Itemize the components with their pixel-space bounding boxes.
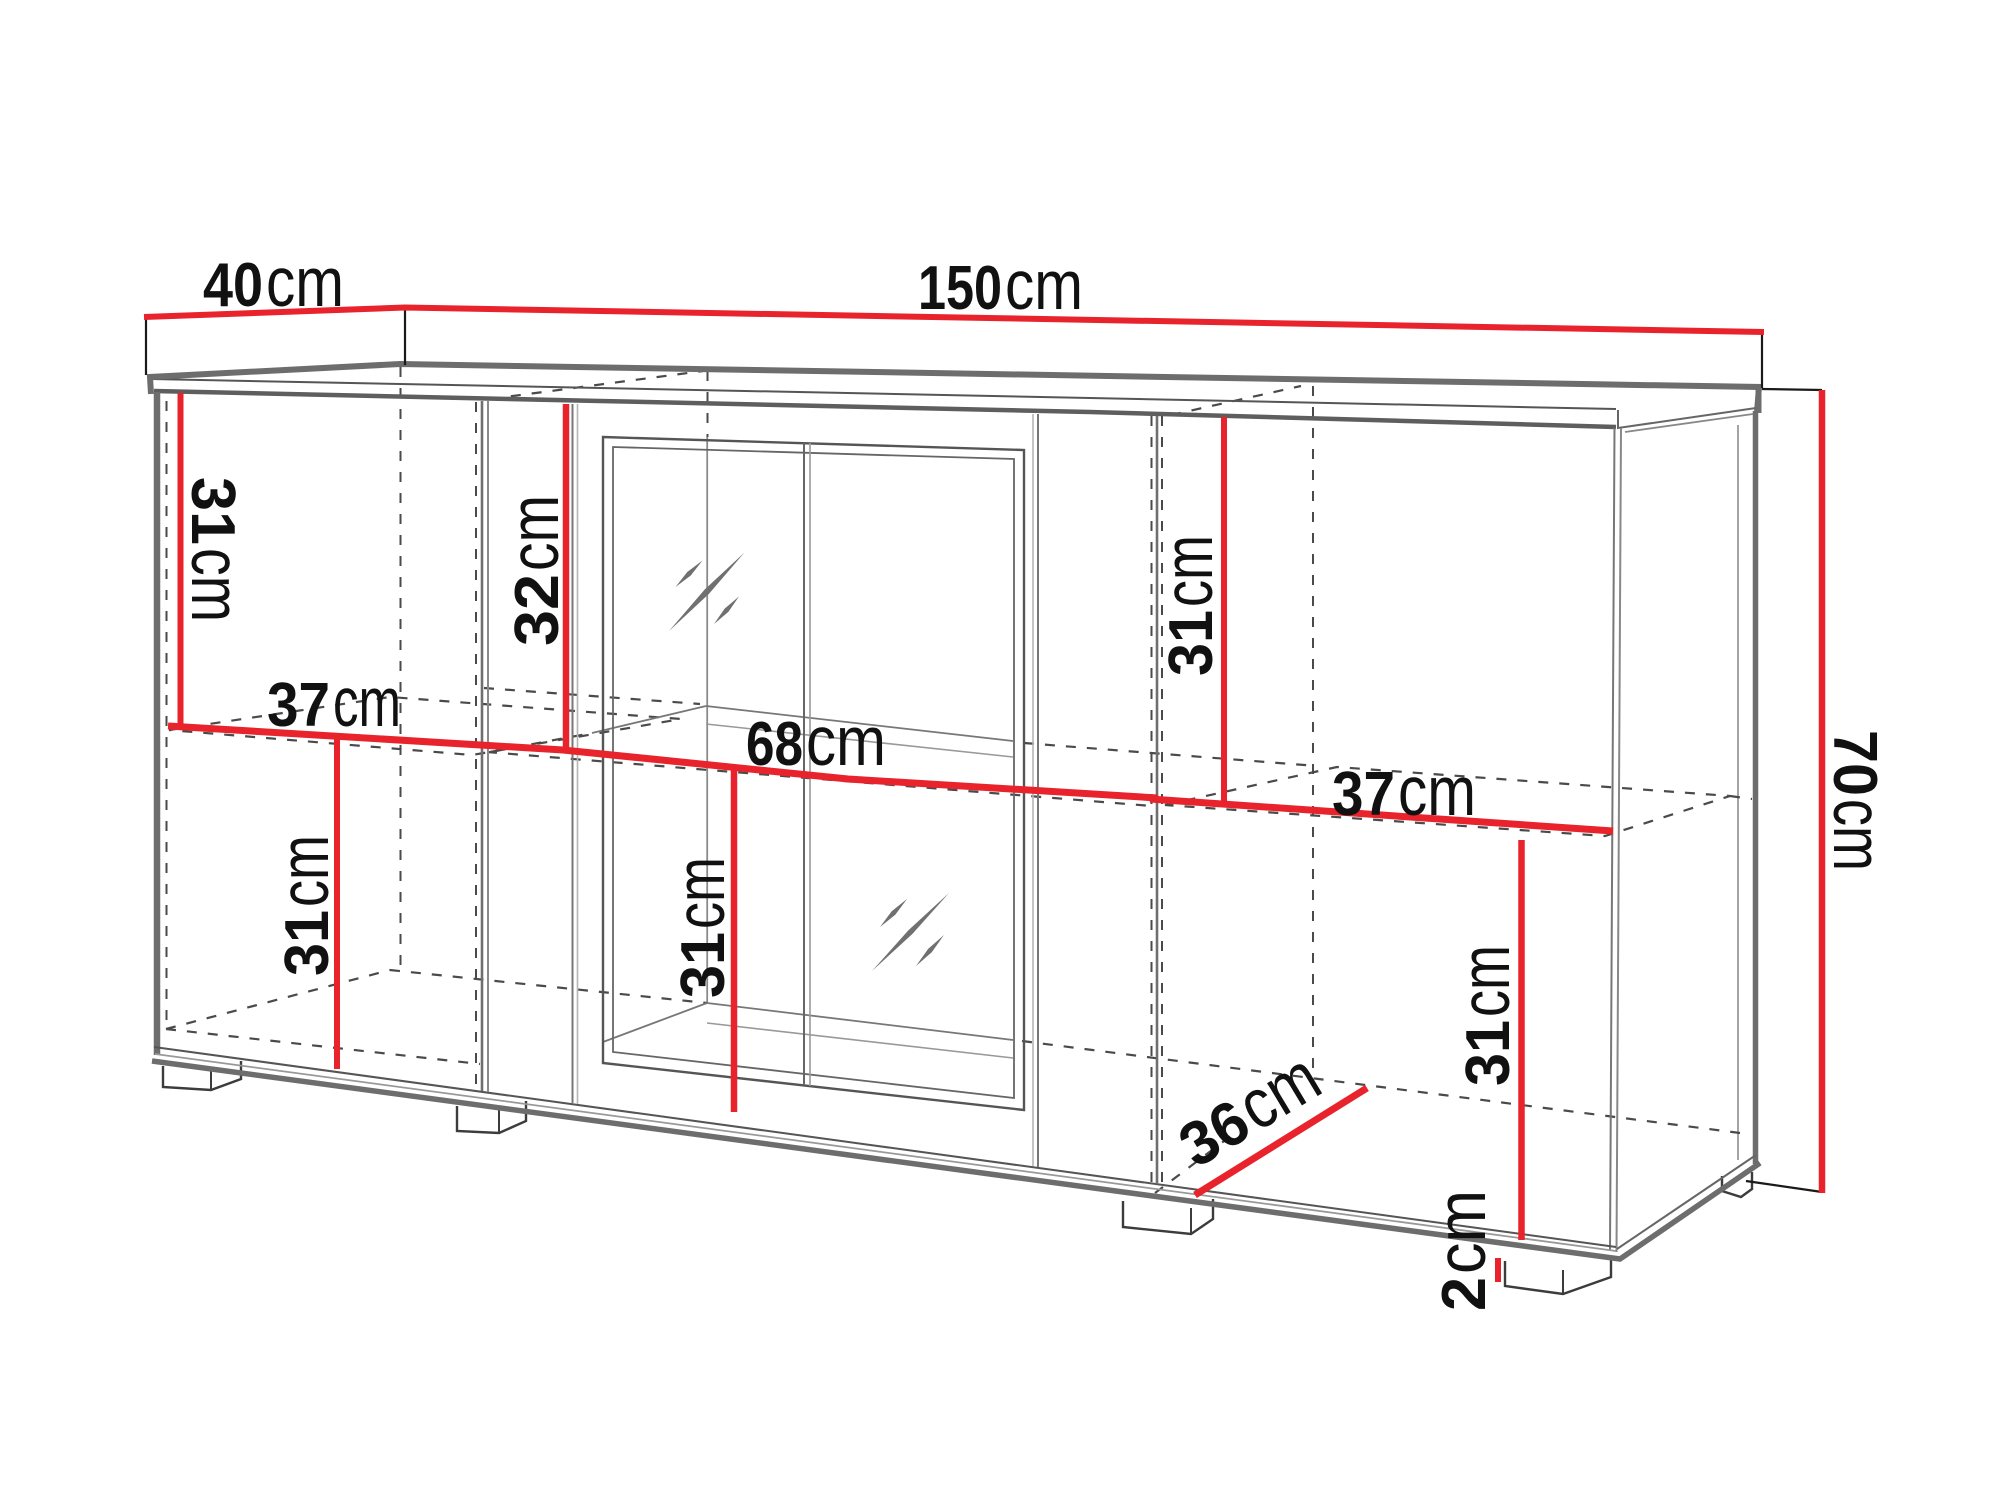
svg-text:2cm: 2cm xyxy=(1422,1190,1500,1311)
svg-text:31cm: 31cm xyxy=(1446,945,1524,1086)
svg-text:150cm: 150cm xyxy=(918,246,1083,324)
svg-text:31cm: 31cm xyxy=(661,857,739,998)
svg-text:68cm: 68cm xyxy=(746,702,886,780)
svg-text:37cm: 37cm xyxy=(1332,752,1476,830)
svg-text:31cm: 31cm xyxy=(177,477,255,622)
svg-text:70cm: 70cm xyxy=(1819,730,1897,871)
svg-text:31cm: 31cm xyxy=(1149,535,1227,676)
svg-text:40cm: 40cm xyxy=(203,243,344,321)
svg-text:31cm: 31cm xyxy=(265,835,343,976)
svg-text:32cm: 32cm xyxy=(495,495,573,646)
svg-text:37cm: 37cm xyxy=(267,663,401,741)
